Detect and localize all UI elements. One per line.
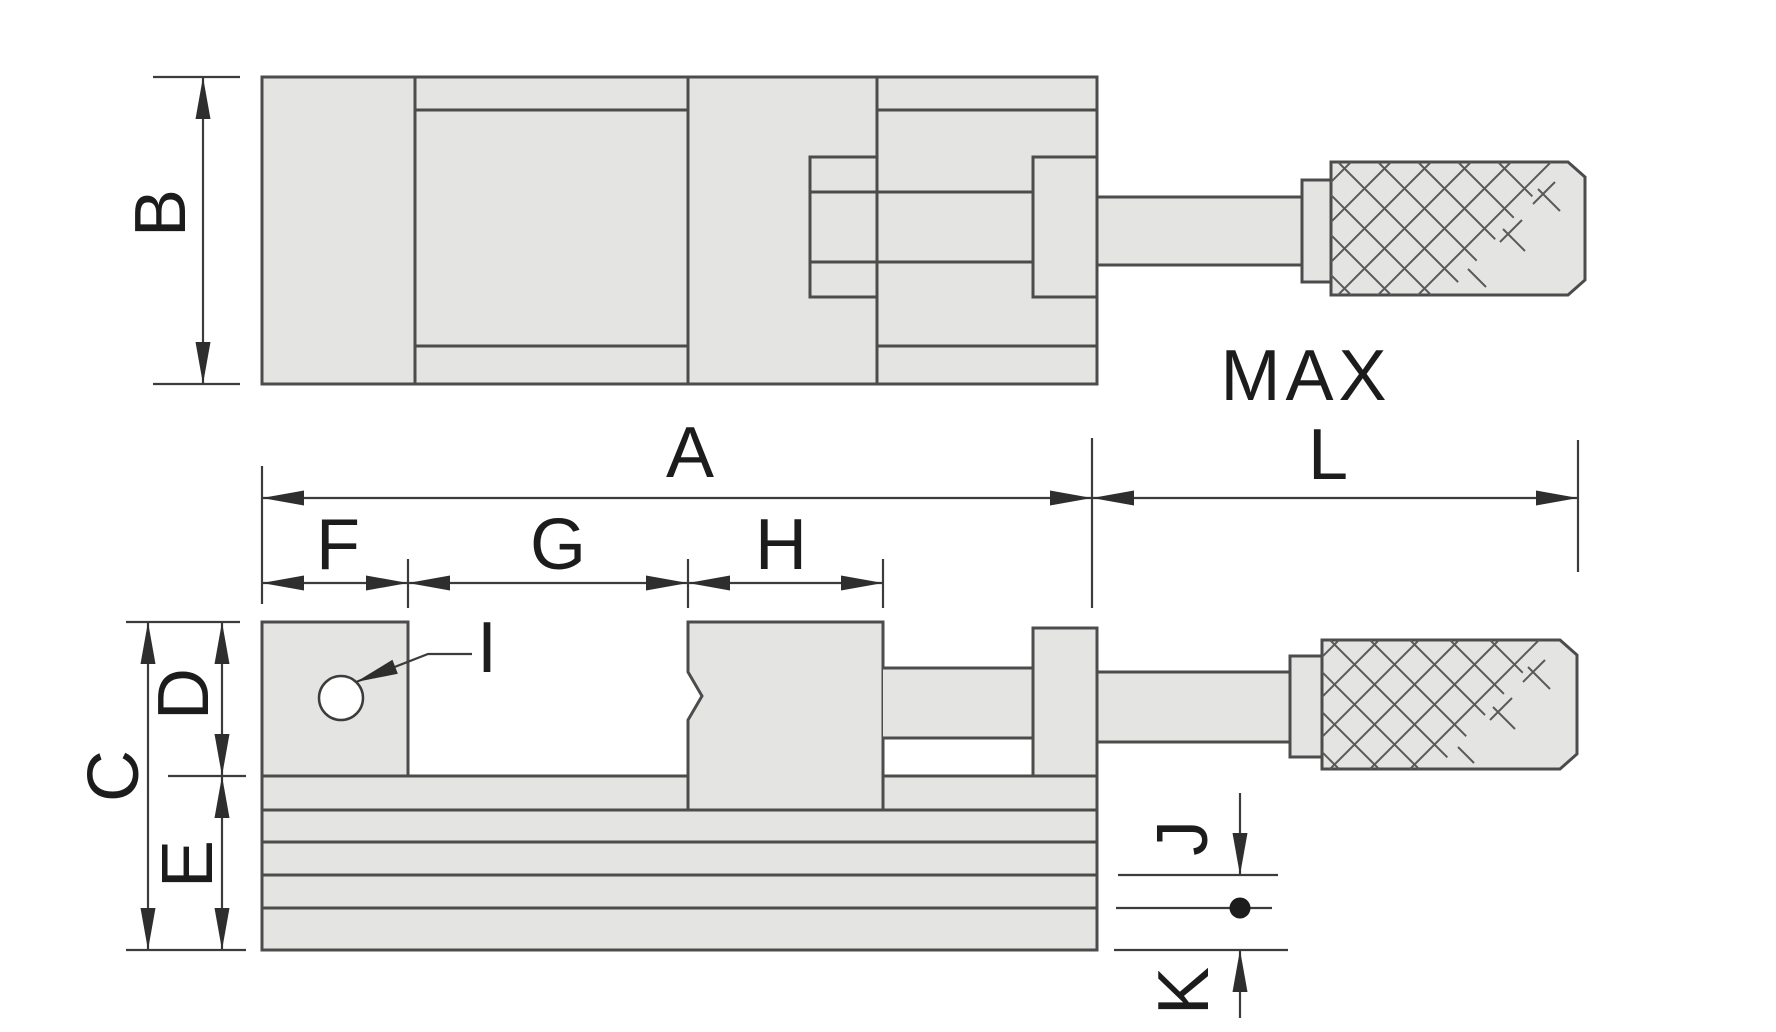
- dim-label-h: H: [755, 505, 807, 585]
- dimension-a: A: [262, 413, 1092, 608]
- dim-label-b: B: [121, 189, 201, 237]
- end-bracket-side-view: [1033, 628, 1097, 776]
- vise-technical-drawing-page: B A MAX: [0, 0, 1776, 1032]
- screw-rod-side-view: [1097, 672, 1290, 742]
- vise-drawing-svg: B A MAX: [0, 0, 1776, 1032]
- knurled-handle-top-view: [1331, 162, 1585, 295]
- dim-label-k: K: [1144, 967, 1224, 1015]
- dimension-f-g-h: F G H: [262, 505, 883, 608]
- dim-label-i: I: [477, 608, 497, 688]
- handle-collar-side-view: [1290, 656, 1322, 757]
- lead-screw-body-side-view: [883, 668, 1033, 738]
- dim-label-f: F: [316, 505, 360, 585]
- dimension-b: B: [121, 77, 240, 384]
- top-view: B: [121, 77, 1631, 384]
- dim-label-g: G: [530, 505, 586, 585]
- dimension-j-k: J K: [1114, 793, 1288, 1018]
- dim-label-e: E: [148, 840, 228, 888]
- handle-collar-top-view: [1302, 180, 1331, 282]
- dim-label-max: MAX: [1220, 336, 1391, 416]
- dim-label-j: J: [1143, 820, 1223, 856]
- dimension-max-l: MAX L: [1092, 336, 1578, 572]
- side-view: A MAX L F G H C D E: [74, 336, 1619, 1018]
- dim-label-a: A: [666, 413, 714, 493]
- vise-body-top-view: [262, 77, 1097, 384]
- dim-label-l: L: [1308, 415, 1348, 495]
- screw-rod-top-view: [1097, 197, 1302, 265]
- dimension-c-d-e: C D E: [74, 622, 246, 950]
- base-side-view: [262, 776, 1097, 950]
- dim-jk-datum-dot: [1230, 898, 1251, 919]
- movable-jaw-side-view: [688, 622, 883, 810]
- end-bracket-top-view: [1033, 157, 1097, 297]
- dim-label-d: D: [144, 668, 224, 720]
- dim-jk-reference-lines: [1114, 875, 1288, 950]
- dim-label-c: C: [74, 750, 154, 802]
